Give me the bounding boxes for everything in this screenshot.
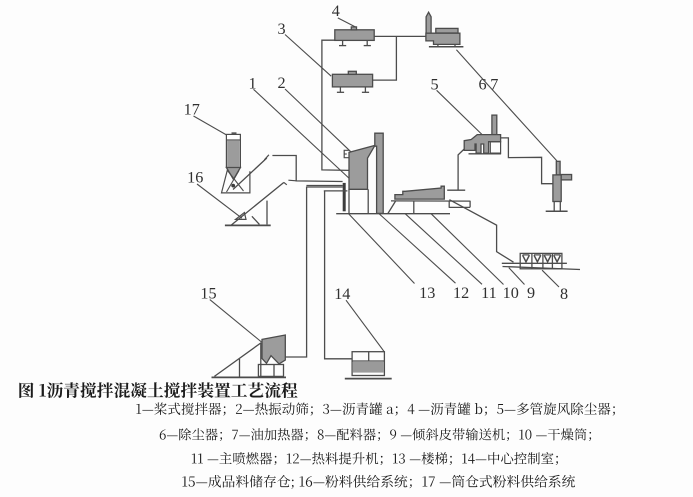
- svg-text:10: 10: [503, 284, 519, 302]
- svg-text:5: 5: [430, 76, 438, 94]
- svg-text:7: 7: [490, 75, 498, 93]
- svg-text:16: 16: [187, 169, 203, 187]
- svg-text:8: 8: [560, 285, 568, 303]
- svg-text:14: 14: [334, 285, 350, 303]
- svg-text:1: 1: [249, 75, 257, 93]
- svg-text:9: 9: [527, 284, 535, 302]
- svg-text:3: 3: [277, 20, 285, 38]
- svg-text:6: 6: [479, 76, 487, 94]
- svg-text:12: 12: [453, 284, 469, 302]
- svg-text:13: 13: [419, 284, 435, 302]
- svg-text:15: 15: [200, 285, 216, 303]
- svg-text:11: 11: [481, 284, 497, 302]
- svg-text:4: 4: [332, 2, 340, 20]
- svg-text:17: 17: [184, 101, 200, 119]
- svg-text:2: 2: [277, 74, 285, 92]
